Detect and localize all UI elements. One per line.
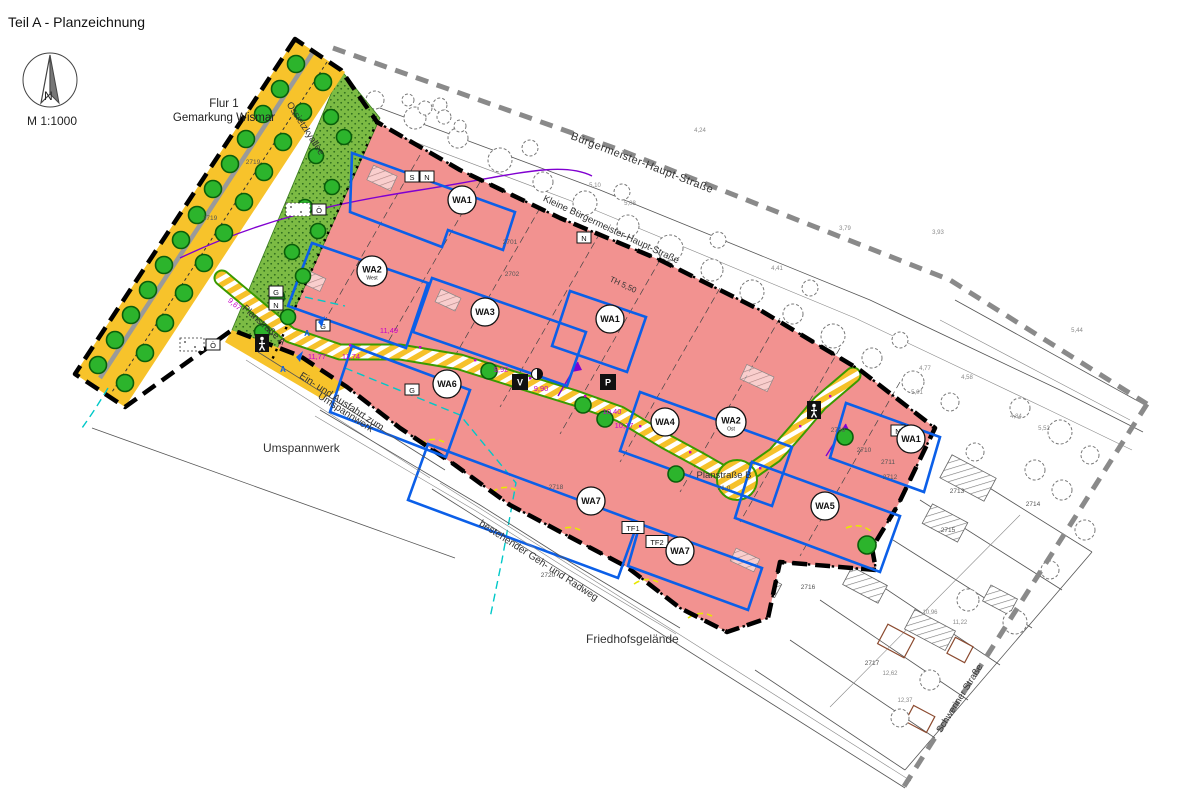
gemarkung-label: Gemarkung Wismar bbox=[173, 112, 275, 124]
marker-box-label: TF1 bbox=[626, 524, 639, 533]
elevation-value: 4,24 bbox=[694, 128, 706, 134]
elevation-value: 3,93 bbox=[932, 230, 944, 236]
north-letter: N bbox=[44, 89, 53, 103]
tree-icon bbox=[140, 282, 157, 299]
parcel-number: 2714 bbox=[1026, 501, 1041, 508]
elevation-value: 12,37 bbox=[897, 698, 913, 704]
tree-icon bbox=[256, 164, 273, 181]
parcel-number: 2711 bbox=[881, 459, 895, 466]
zone-label: WA1 bbox=[901, 434, 921, 444]
tree-icon bbox=[196, 255, 213, 272]
parcel-number: 2715 bbox=[941, 527, 956, 534]
tree-icon bbox=[285, 245, 300, 260]
tree-icon bbox=[802, 280, 818, 296]
tree-icon bbox=[862, 348, 882, 368]
signal-symbol bbox=[532, 369, 543, 380]
plan-sheet: S N N Ö Ö G N G G N TF1 TF2 V P WA1 bbox=[0, 0, 1200, 811]
tree-icon bbox=[315, 74, 332, 91]
tree-icon bbox=[123, 307, 140, 324]
marker-box-label: N bbox=[424, 173, 429, 182]
sheet-header: Teil A - Planzeichnung N M 1:1000 bbox=[8, 14, 145, 128]
tree-icon bbox=[941, 393, 959, 411]
elevation-value: 11,22 bbox=[953, 620, 968, 626]
zone-label: WA5 bbox=[815, 501, 835, 511]
parcel-number: 2712 bbox=[883, 474, 898, 481]
tree-icon bbox=[288, 56, 305, 73]
marker-box-label: G bbox=[273, 288, 279, 297]
tree-icon bbox=[117, 375, 134, 392]
pedestrian-icon bbox=[807, 401, 821, 419]
parcel-number: 2716 bbox=[801, 584, 816, 591]
tree-icon bbox=[157, 315, 174, 332]
level-label: 11,74 bbox=[342, 352, 360, 361]
scale-label: M 1:1000 bbox=[27, 114, 77, 128]
tree-icon bbox=[275, 134, 292, 151]
tree-icon bbox=[236, 194, 253, 211]
tree-icon bbox=[575, 397, 591, 413]
tree-icon bbox=[173, 232, 190, 249]
umspannwerk-label: Umspannwerk bbox=[263, 441, 341, 455]
site-plan-map: S N N Ö Ö G N G G N TF1 TF2 V P WA1 bbox=[0, 0, 1200, 811]
parcel-number: 2713 bbox=[950, 488, 965, 495]
tree-icon bbox=[296, 269, 311, 284]
parcel-number: 2718 bbox=[549, 484, 564, 491]
sheet-title: Teil A - Planzeichnung bbox=[8, 14, 145, 30]
tree-icon bbox=[281, 310, 296, 325]
tree-icon bbox=[216, 225, 233, 242]
elevation-value: 4,77 bbox=[919, 366, 931, 372]
tree-icon bbox=[337, 130, 352, 145]
tree-icon bbox=[238, 131, 255, 148]
tree-icon bbox=[821, 324, 845, 348]
tree-icon bbox=[858, 536, 876, 554]
marker-box-label: N bbox=[273, 301, 278, 310]
elevation-value: 10,96 bbox=[922, 610, 938, 616]
elevation-value: 5,08 bbox=[624, 201, 636, 207]
level-label: 10,40 bbox=[603, 407, 622, 416]
parcel-number: 2710 bbox=[857, 447, 872, 454]
tree-icon bbox=[1041, 561, 1059, 579]
level-label: 9,92 bbox=[494, 365, 509, 374]
north-arrow: N bbox=[23, 53, 77, 107]
road-width-label: 21,0 bbox=[718, 485, 731, 492]
tree-icon bbox=[783, 304, 803, 324]
street-name: Schweriner Straße bbox=[934, 662, 985, 735]
parcel-number: 2717 bbox=[865, 660, 880, 667]
zone-label: WA2 bbox=[721, 416, 741, 426]
tree-icon bbox=[488, 148, 512, 172]
tree-icon bbox=[522, 140, 538, 156]
parcel-number: 2701 bbox=[503, 239, 518, 246]
elevation-value: 4,84 bbox=[1010, 414, 1022, 420]
parcel-number: 2720 bbox=[541, 572, 556, 579]
tree-icon bbox=[402, 94, 414, 106]
tree-icon bbox=[1025, 460, 1045, 480]
marker-box-label: N bbox=[581, 234, 586, 243]
friedhof-label: Friedhofsgelände bbox=[586, 632, 679, 646]
marker-box-label: G bbox=[409, 386, 415, 395]
tree-icon bbox=[437, 110, 451, 124]
parking-symbol: P bbox=[600, 374, 616, 390]
tree-icon bbox=[311, 224, 326, 239]
elevation-value: 5,52 bbox=[1038, 426, 1050, 432]
parcel-number: 2702 bbox=[505, 271, 520, 278]
marker-box-label: Ö bbox=[210, 341, 216, 350]
marker-box-label: S bbox=[409, 173, 414, 182]
tree-icon bbox=[1081, 446, 1099, 464]
zone-label: WA1 bbox=[600, 314, 620, 324]
tree-icon bbox=[433, 98, 447, 112]
tree-icon bbox=[324, 110, 339, 125]
parken-label: P bbox=[605, 377, 611, 387]
tree-icon bbox=[891, 709, 909, 727]
tree-icon bbox=[176, 285, 193, 302]
parcel-number: 2709 bbox=[831, 427, 846, 434]
tree-icon bbox=[272, 81, 289, 98]
tree-icon bbox=[892, 332, 908, 348]
tree-icon bbox=[966, 443, 984, 461]
tree-icon bbox=[957, 589, 979, 611]
elevation-value: 4,58 bbox=[961, 375, 973, 381]
zone-label: WA6 bbox=[437, 379, 457, 389]
tree-icon bbox=[1075, 520, 1095, 540]
level-label: 9,90 bbox=[534, 384, 549, 393]
verkehr-label: V bbox=[517, 377, 523, 387]
zone-label: WA7 bbox=[670, 546, 690, 556]
zone-sublabel: Ost bbox=[727, 427, 735, 433]
tree-icon bbox=[1052, 480, 1072, 500]
elevation-value: 4,41 bbox=[771, 266, 783, 272]
access-arrow-label: A bbox=[304, 329, 310, 338]
tree-icon bbox=[1048, 420, 1072, 444]
parcel-number: 2719 bbox=[246, 159, 261, 166]
tree-icon bbox=[205, 181, 222, 198]
zone-label: WA2 bbox=[362, 265, 382, 275]
tree-icon bbox=[920, 670, 940, 690]
pedestrian-icon bbox=[255, 334, 269, 352]
elevation-value: 3,79 bbox=[839, 226, 851, 232]
zone-sublabel: West bbox=[366, 276, 378, 282]
marker-box-label: Ö bbox=[316, 206, 322, 215]
tree-icon bbox=[325, 180, 340, 195]
tree-icon bbox=[710, 232, 726, 248]
tree-icon bbox=[454, 120, 466, 132]
tree-icon bbox=[533, 172, 553, 192]
tree-icon bbox=[137, 345, 154, 362]
tree-icon bbox=[222, 156, 239, 173]
elevation-value: 5,10 bbox=[589, 183, 601, 189]
zone-label: WA3 bbox=[475, 307, 495, 317]
marker-box-label: TF2 bbox=[650, 538, 663, 547]
level-label: 11,77 bbox=[308, 352, 326, 361]
level-label: 10,17 bbox=[615, 421, 634, 430]
tree-icon bbox=[668, 466, 684, 482]
level-label: 11,49 bbox=[380, 326, 398, 335]
zone-label: WA4 bbox=[655, 417, 675, 427]
elevation-value: 5,44 bbox=[1071, 328, 1083, 334]
tree-icon bbox=[614, 184, 630, 200]
tree-icon bbox=[418, 101, 432, 115]
zone-label: WA1 bbox=[452, 195, 472, 205]
parcel-number: 2719 bbox=[203, 215, 218, 222]
tree-icon bbox=[156, 257, 173, 274]
street-name: Planstraße B bbox=[697, 470, 752, 481]
elevation-value: 12,62 bbox=[882, 671, 898, 677]
elevation-value: 5,01 bbox=[911, 390, 923, 396]
access-arrow-label: A bbox=[280, 365, 286, 374]
tree-icon bbox=[90, 357, 107, 374]
zone-label: WA7 bbox=[581, 496, 601, 506]
tree-icon bbox=[107, 332, 124, 349]
tree-icon bbox=[701, 259, 723, 281]
flur-label: Flur 1 bbox=[209, 98, 238, 110]
verkehrsberuhigt-symbol: V bbox=[512, 374, 528, 390]
